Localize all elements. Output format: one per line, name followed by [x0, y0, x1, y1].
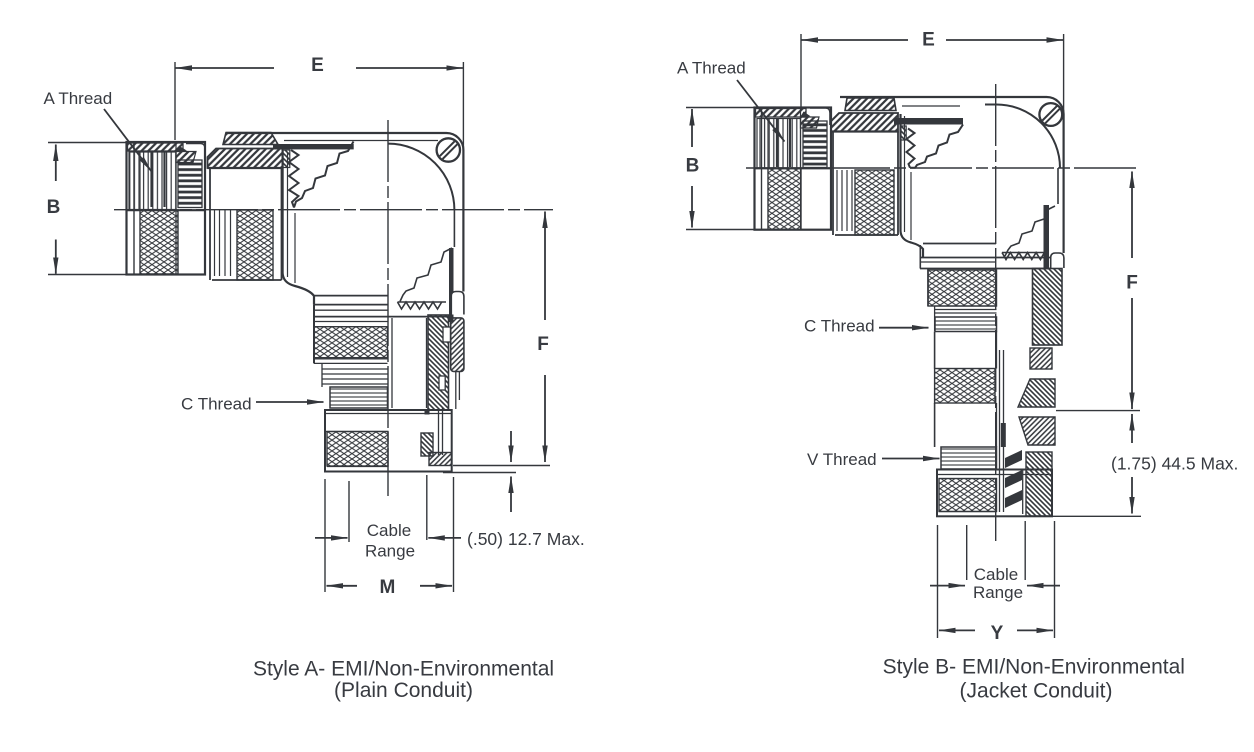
svg-text:Style A- EMI/Non-Environmental: Style A- EMI/Non-Environmental	[253, 658, 554, 681]
svg-text:Style B- EMI/Non-Environmental: Style B- EMI/Non-Environmental	[883, 656, 1185, 679]
svg-text:Cable: Cable	[974, 565, 1018, 584]
svg-text:A Thread: A Thread	[44, 89, 113, 108]
svg-text:(.50) 12.7 Max.: (.50) 12.7 Max.	[467, 529, 585, 549]
svg-text:E: E	[922, 30, 935, 51]
svg-text:(1.75) 44.5 Max.: (1.75) 44.5 Max.	[1111, 454, 1238, 474]
svg-text:A Thread: A Thread	[677, 59, 746, 78]
svg-text:(Jacket Conduit): (Jacket Conduit)	[960, 680, 1113, 703]
svg-text:C Thread: C Thread	[181, 395, 252, 414]
svg-text:M: M	[379, 577, 395, 598]
svg-text:B: B	[47, 197, 61, 218]
svg-text:C Thread: C Thread	[804, 317, 875, 336]
svg-text:Range: Range	[973, 583, 1023, 602]
svg-text:B: B	[686, 156, 700, 177]
svg-text:E: E	[311, 55, 324, 76]
svg-text:Range: Range	[365, 542, 415, 561]
svg-text:(Plain Conduit): (Plain Conduit)	[334, 679, 473, 702]
svg-text:F: F	[537, 334, 549, 355]
svg-text:Y: Y	[991, 623, 1004, 644]
svg-text:Cable: Cable	[367, 521, 411, 540]
svg-text:F: F	[1126, 273, 1138, 294]
svg-text:V Thread: V Thread	[807, 450, 877, 469]
